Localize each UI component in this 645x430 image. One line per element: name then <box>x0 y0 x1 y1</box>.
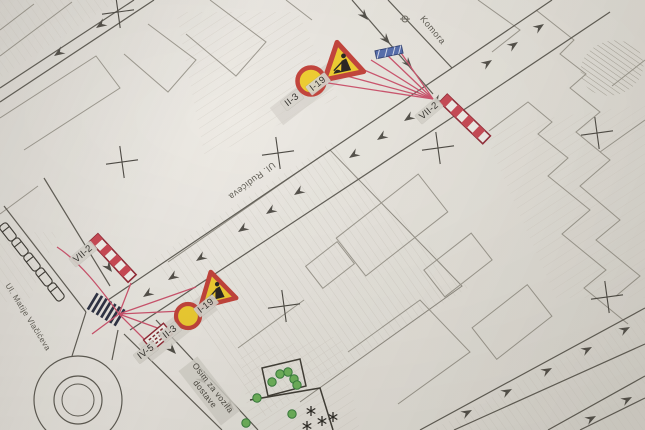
barrier-vii2-top <box>440 94 491 144</box>
plan-drawing <box>0 0 645 430</box>
hatched-areas <box>0 0 645 430</box>
plan-photo: Ul. Rudićeva Ul. Matije Vlačićeva Komora… <box>0 0 645 430</box>
barrier-vii2-left <box>90 234 136 282</box>
roundabout <box>34 356 122 430</box>
